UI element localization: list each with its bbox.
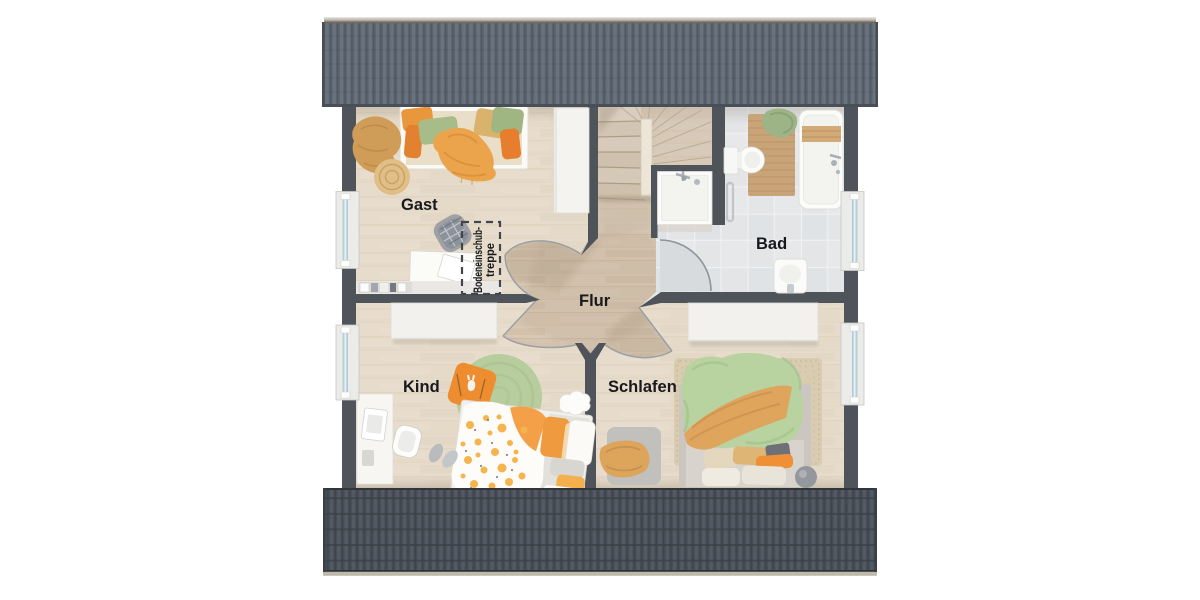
svg-text:Bad: Bad: [756, 235, 787, 253]
svg-text:Kind: Kind: [403, 378, 440, 396]
svg-text:treppe: treppe: [483, 243, 497, 277]
svg-text:Gast: Gast: [401, 196, 438, 214]
svg-text:Flur: Flur: [579, 292, 611, 310]
svg-text:Schlafen: Schlafen: [608, 378, 677, 396]
